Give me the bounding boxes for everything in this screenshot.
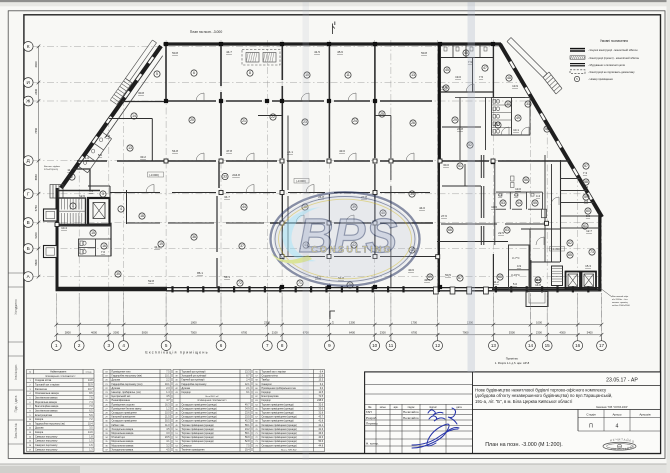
svg-text:52.8: 52.8 bbox=[245, 441, 250, 443]
svg-text:Примітки:: Примітки: bbox=[506, 357, 519, 361]
svg-text:1700: 1700 bbox=[411, 320, 417, 324]
svg-text:Складське приміщення (оренда): Складське приміщення (оренда) bbox=[262, 444, 297, 447]
svg-text:2300: 2300 bbox=[536, 331, 542, 335]
svg-text:1300: 1300 bbox=[349, 320, 355, 324]
svg-text:Приміщення прибирального інв.: Приміщення прибирального інв. bbox=[262, 387, 297, 390]
svg-text:60: 60 bbox=[586, 209, 590, 213]
svg-text:Складське приміщення (оренда): Складське приміщення (оренда) bbox=[182, 407, 217, 410]
svg-text:14: 14 bbox=[132, 114, 136, 118]
svg-text:- Конструкції не підлягають де: - Конструкції не підлягають демонтажу bbox=[588, 70, 635, 74]
svg-text:Торгове приміщення (оренда): Торгове приміщення (оренда) bbox=[262, 407, 294, 410]
svg-text:Холодильна камера: Холодильна камера bbox=[112, 449, 134, 451]
svg-text:4.4: 4.4 bbox=[536, 194, 541, 198]
svg-text:ПРИМІЩЕННЯ СУПЕРМАРКЕТУ: ПРИМІЩЕННЯ СУПЕРМАРКЕТУ bbox=[45, 375, 76, 378]
svg-text:Вентиляційна камера: Вентиляційна камера bbox=[35, 405, 59, 408]
svg-text:Холодильна камера: Холодильна камера bbox=[112, 429, 134, 431]
svg-text:Експлікація приміщень: Експлікація приміщень bbox=[145, 351, 208, 355]
svg-text:6700: 6700 bbox=[241, 331, 247, 335]
svg-text:54: 54 bbox=[517, 201, 521, 205]
svg-text:67: 67 bbox=[458, 276, 462, 280]
svg-text:підпис: підпис bbox=[429, 405, 437, 409]
svg-text:№: № bbox=[29, 371, 31, 374]
svg-text:30.0: 30.0 bbox=[443, 163, 449, 167]
svg-text:Вантажний ліфт: Вантажний ліфт bbox=[612, 295, 628, 298]
svg-text:Електрощитова: Електрощитова bbox=[262, 396, 280, 398]
svg-text:План на позн. -3.000: План на позн. -3.000 bbox=[190, 30, 223, 34]
svg-text:3400: 3400 bbox=[587, 331, 593, 335]
svg-text:Замовник ТОВ "СОЮЗ-2004": Замовник ТОВ "СОЮЗ-2004" bbox=[596, 406, 628, 409]
svg-text:86.1: 86.1 bbox=[197, 271, 203, 275]
svg-text:1.6: 1.6 bbox=[106, 134, 111, 138]
svg-text:44.1: 44.1 bbox=[287, 150, 293, 154]
svg-text:62: 62 bbox=[568, 241, 572, 245]
svg-text:Зм.: Зм. bbox=[368, 405, 372, 409]
svg-text:Фасовочна: Фасовочна bbox=[35, 388, 48, 391]
svg-text:47: 47 bbox=[483, 66, 487, 70]
svg-text:50.5: 50.5 bbox=[445, 273, 451, 277]
svg-text:29: 29 bbox=[453, 118, 457, 122]
svg-text:Складське приміщення (оренда): Складське приміщення (оренда) bbox=[262, 424, 297, 427]
svg-text:Морозильна камера: Морозильна камера bbox=[112, 433, 135, 435]
svg-text:- Конструкції (проект) - монол: - Конструкції (проект) - монолітний з/бе… bbox=[588, 56, 640, 60]
svg-text:25: 25 bbox=[380, 112, 384, 116]
svg-text:Санвузол: Санвузол bbox=[182, 445, 193, 447]
svg-text:кабіна 1500х2500: кабіна 1500х2500 bbox=[612, 304, 631, 307]
svg-text:10.0: 10.0 bbox=[165, 413, 170, 415]
svg-text:41.5: 41.5 bbox=[314, 50, 320, 54]
svg-text:53: 53 bbox=[501, 201, 505, 205]
svg-text:45: 45 bbox=[445, 68, 449, 72]
svg-text:13.7: 13.7 bbox=[88, 389, 93, 391]
svg-text:41.6: 41.6 bbox=[154, 245, 160, 249]
svg-text:43.0: 43.0 bbox=[339, 149, 345, 153]
svg-text:49.7: 49.7 bbox=[424, 278, 430, 282]
svg-text:Приміщення безпеки камер: Приміщення безпеки камер bbox=[112, 407, 142, 410]
svg-text:Ж: Ж bbox=[26, 99, 31, 104]
svg-text:Інв.№ориг.: Інв.№ориг. bbox=[14, 364, 18, 380]
svg-text:19.4: 19.4 bbox=[245, 449, 250, 451]
svg-text:7500: 7500 bbox=[191, 331, 197, 335]
svg-text:Заготівельна камера: Заготівельна камера bbox=[35, 397, 58, 400]
svg-text:П: П bbox=[589, 424, 593, 430]
svg-text:5000: 5000 bbox=[142, 331, 148, 335]
svg-text:Нечитайло: Нечитайло bbox=[403, 410, 419, 414]
svg-text:24: 24 bbox=[353, 119, 357, 123]
svg-text:42.3: 42.3 bbox=[318, 437, 323, 439]
svg-text:Торговий цех кулінарії: Торговий цех кулінарії bbox=[182, 371, 206, 374]
svg-text:43.7: 43.7 bbox=[318, 417, 323, 419]
svg-text:11: 11 bbox=[389, 343, 394, 348]
svg-text:23.5: 23.5 bbox=[245, 417, 250, 419]
svg-text:Узгоджено: Узгоджено bbox=[14, 299, 18, 315]
svg-text:5750: 5750 bbox=[34, 205, 38, 211]
svg-text:8.9: 8.9 bbox=[586, 214, 591, 218]
svg-text:31: 31 bbox=[526, 102, 530, 106]
svg-text:Складське приміщення: Складське приміщення bbox=[112, 412, 138, 415]
svg-text:1: 1 bbox=[332, 321, 334, 325]
svg-text:55: 55 bbox=[533, 201, 537, 205]
svg-text:6: 6 bbox=[193, 71, 195, 75]
svg-text:Центральний зал: Центральний зал bbox=[112, 395, 131, 398]
svg-text:Душова: Душова bbox=[35, 428, 44, 430]
svg-text:Підп. і дата: Підп. і дата bbox=[14, 395, 18, 412]
svg-text:23.5: 23.5 bbox=[165, 437, 170, 439]
svg-text:М`ясний цех: М`ясний цех bbox=[112, 436, 126, 439]
svg-text:Аркушів: Аркушів bbox=[639, 413, 651, 417]
svg-text:8: 8 bbox=[281, 343, 284, 348]
svg-text:12.7: 12.7 bbox=[586, 229, 592, 233]
svg-text:37: 37 bbox=[240, 244, 244, 248]
svg-text:36: 36 bbox=[192, 235, 196, 239]
svg-text:Складське приміщення (оренда): Складське приміщення (оренда) bbox=[182, 412, 217, 415]
svg-text:32.6: 32.6 bbox=[318, 404, 323, 406]
svg-text:41.1: 41.1 bbox=[318, 425, 323, 427]
svg-text:Торговий зал з нарізки: Торговий зал з нарізки bbox=[262, 371, 287, 374]
svg-text:71.5: 71.5 bbox=[318, 396, 323, 398]
svg-text:44.7: 44.7 bbox=[226, 50, 232, 54]
svg-text:Торгове приміщення (оренда): Торгове приміщення (оренда) bbox=[182, 432, 214, 435]
svg-text:Душова: Душова bbox=[182, 388, 191, 390]
svg-text:Санвузол персоналу: Санвузол персоналу bbox=[35, 449, 58, 451]
svg-text:Гардеробна персоналу (зм): Гардеробна персоналу (зм) bbox=[35, 423, 65, 425]
svg-text:(добудова об'єкту незавершеног: (добудова об'єкту незавершеного будівниц… bbox=[475, 393, 612, 398]
svg-text:Вантаж. підйом.: Вантаж. підйом. bbox=[44, 165, 61, 168]
svg-text:50.6: 50.6 bbox=[318, 441, 323, 443]
svg-text:54.8: 54.8 bbox=[172, 149, 178, 153]
svg-text:5: 5 bbox=[165, 343, 168, 348]
svg-text:6700: 6700 bbox=[411, 331, 417, 335]
svg-text:10.1: 10.1 bbox=[513, 128, 519, 132]
svg-text:16: 16 bbox=[102, 244, 106, 248]
svg-text:57: 57 bbox=[584, 164, 588, 168]
svg-text:Кабінет зав.: Кабінет зав. bbox=[112, 424, 125, 427]
svg-text:Санвузол персоналу: Санвузол персоналу bbox=[35, 441, 58, 443]
svg-text:2300: 2300 bbox=[264, 320, 270, 324]
svg-text:1: 1 bbox=[72, 204, 74, 208]
svg-text:Складське приміщення (оренда): Складське приміщення (оренда) bbox=[262, 428, 297, 431]
svg-text:7.0: 7.0 bbox=[101, 250, 106, 254]
svg-text:58: 58 bbox=[584, 180, 588, 184]
svg-text:7450: 7450 bbox=[34, 127, 38, 133]
svg-text:Складське приміщення (оренда): Складське приміщення (оренда) bbox=[262, 440, 297, 443]
svg-text:14.8: 14.8 bbox=[88, 380, 93, 382]
svg-text:58.1: 58.1 bbox=[245, 425, 250, 427]
svg-text:47.8: 47.8 bbox=[226, 149, 232, 153]
svg-text:13: 13 bbox=[491, 343, 497, 348]
svg-text:7: 7 bbox=[266, 343, 269, 348]
svg-text:35: 35 bbox=[116, 272, 120, 276]
svg-text:61: 61 bbox=[583, 224, 587, 228]
svg-text:34.7: 34.7 bbox=[224, 195, 230, 199]
svg-text:Приміщення тели: Приміщення тели bbox=[112, 371, 132, 374]
svg-text:Гардеробна персоналу (чол): Гардеробна персоналу (чол) bbox=[112, 384, 143, 386]
svg-text:Гардеробна персоналу (жін): Гардеробна персоналу (жін) bbox=[112, 375, 143, 378]
svg-text:41.8: 41.8 bbox=[318, 421, 323, 423]
svg-text:44.0: 44.0 bbox=[419, 206, 425, 210]
svg-text:Заготівельна камера: Заготівельна камера bbox=[35, 409, 58, 412]
svg-text:4400: 4400 bbox=[34, 61, 38, 67]
svg-text:13.3: 13.3 bbox=[318, 380, 323, 382]
svg-text:площа: площа bbox=[86, 372, 93, 374]
svg-text:Сходова клітка: Сходова клітка bbox=[35, 379, 52, 382]
svg-text:Нове будівництво нежитлової бу: Нове будівництво нежитлової будівлі торг… bbox=[475, 388, 607, 393]
svg-text:Торгове приміщення (оренда): Торгове приміщення (оренда) bbox=[182, 440, 214, 443]
svg-text:машин. приміщ.: машин. приміщ. bbox=[612, 301, 629, 304]
svg-text:Сходова клітка: Сходова клітка bbox=[262, 375, 279, 378]
svg-text:Розроб.: Розроб. bbox=[366, 416, 377, 420]
svg-text:21.5: 21.5 bbox=[165, 417, 170, 419]
svg-text:1.1: 1.1 bbox=[498, 193, 503, 197]
svg-text:CONSULTING: CONSULTING bbox=[311, 245, 393, 255]
svg-text:кільк.: кільк. bbox=[380, 405, 387, 409]
svg-text:11.2: 11.2 bbox=[67, 168, 73, 172]
svg-text:12.1: 12.1 bbox=[245, 384, 250, 386]
svg-text:24.2: 24.2 bbox=[245, 429, 250, 431]
svg-text:15: 15 bbox=[545, 343, 551, 348]
svg-text:15.3: 15.3 bbox=[585, 264, 591, 268]
svg-text:21: 21 bbox=[242, 119, 246, 123]
svg-text:46: 46 bbox=[464, 51, 468, 55]
svg-text:4300: 4300 bbox=[560, 331, 566, 335]
svg-text:30: 30 bbox=[506, 102, 510, 106]
svg-text:7.3: 7.3 bbox=[583, 171, 588, 175]
svg-text:2: 2 bbox=[78, 343, 81, 348]
svg-text:Гарячий цех кулінарії: Гарячий цех кулінарії bbox=[182, 379, 205, 382]
svg-text:5.0: 5.0 bbox=[513, 282, 518, 286]
svg-text:54.1: 54.1 bbox=[224, 275, 230, 279]
svg-text:52.8: 52.8 bbox=[148, 279, 154, 283]
svg-text:Тамбур: Тамбур bbox=[262, 380, 271, 382]
svg-text:1000: 1000 bbox=[536, 320, 542, 324]
svg-text:- Номер приміщення: - Номер приміщення bbox=[588, 77, 613, 81]
svg-text:t=-15°C: t=-15°C bbox=[511, 273, 520, 277]
svg-text:Б: Б bbox=[27, 246, 30, 251]
svg-text:13.9: 13.9 bbox=[512, 84, 518, 88]
svg-text:49: 49 bbox=[516, 116, 520, 120]
svg-text:19.0: 19.0 bbox=[455, 75, 461, 79]
svg-text:11: 11 bbox=[346, 73, 350, 77]
svg-text:66: 66 bbox=[448, 228, 452, 232]
svg-text:45.3: 45.3 bbox=[245, 421, 250, 423]
svg-text:1: 1 bbox=[55, 343, 58, 348]
svg-text:23.8: 23.8 bbox=[457, 127, 463, 131]
svg-text:Катерний приміщення: Катерний приміщення bbox=[112, 416, 136, 419]
svg-text:12: 12 bbox=[435, 343, 441, 348]
svg-text:ГАП: ГАП bbox=[366, 410, 372, 414]
svg-text:В: В bbox=[27, 220, 30, 225]
svg-text:Комора: Комора bbox=[35, 419, 44, 421]
svg-text:10.1: 10.1 bbox=[165, 384, 170, 386]
svg-text:арк.: арк. bbox=[394, 406, 399, 409]
svg-text:Опалювальна камера: Опалювальна камера bbox=[35, 393, 59, 395]
svg-text:Торгове приміщення (оренда): Торгове приміщення (оренда) bbox=[262, 403, 294, 406]
svg-text:2100: 2100 bbox=[272, 331, 278, 335]
svg-text:11.5: 11.5 bbox=[319, 392, 324, 394]
svg-text:12.8: 12.8 bbox=[318, 376, 323, 378]
svg-text:45.6: 45.6 bbox=[337, 50, 343, 54]
svg-text:4: 4 bbox=[122, 343, 125, 348]
svg-text:34: 34 bbox=[410, 192, 414, 196]
svg-text:1000: 1000 bbox=[191, 320, 197, 324]
svg-text:27.6: 27.6 bbox=[441, 214, 447, 218]
svg-text:13.3: 13.3 bbox=[245, 372, 250, 374]
svg-text:5: 5 bbox=[156, 72, 158, 76]
svg-text:22.5: 22.5 bbox=[498, 231, 504, 235]
svg-text:14.9: 14.9 bbox=[88, 432, 93, 434]
svg-text:41.3: 41.3 bbox=[318, 429, 323, 431]
svg-text:5600: 5600 bbox=[34, 259, 38, 265]
svg-text:5200: 5200 bbox=[34, 232, 38, 238]
svg-text:17: 17 bbox=[599, 343, 605, 348]
svg-text:Приміщення охорони: Приміщення охорони bbox=[112, 403, 136, 406]
svg-text:33: 33 bbox=[223, 175, 227, 179]
svg-text:4.4: 4.4 bbox=[89, 189, 94, 193]
svg-text:32: 32 bbox=[496, 123, 500, 127]
svg-text:BPS: BPS bbox=[299, 210, 398, 263]
svg-text:5.0: 5.0 bbox=[98, 153, 103, 157]
svg-text:Морозильна камера: Морозильна камера bbox=[112, 441, 135, 443]
svg-text:33.6: 33.6 bbox=[318, 408, 323, 410]
svg-text:Технічне приміщення: Технічне приміщення bbox=[182, 448, 206, 451]
svg-text:К: К bbox=[27, 44, 30, 49]
svg-text:59.9: 59.9 bbox=[245, 437, 250, 439]
svg-text:15: 15 bbox=[91, 231, 95, 235]
svg-text:Зам.інв.№: Зам.інв.№ bbox=[14, 423, 18, 439]
svg-text:(-3.000): (-3.000) bbox=[551, 247, 561, 251]
svg-text:1.1: 1.1 bbox=[514, 193, 519, 197]
svg-text:Аркуш: Аркуш bbox=[613, 413, 623, 417]
svg-text:Коридор: Коридор bbox=[262, 392, 272, 394]
svg-text:Умовні позначення: Умовні позначення bbox=[600, 39, 628, 43]
svg-text:Коридор: Коридор bbox=[182, 392, 192, 394]
svg-text:1.0: 1.0 bbox=[85, 156, 90, 160]
svg-text:Електрощитова: Електрощитова bbox=[35, 415, 53, 417]
svg-text:Складське приміщення (оренда): Складське приміщення (оренда) bbox=[182, 420, 217, 423]
svg-text:Всьо 890.1 м2: Всьо 890.1 м2 bbox=[205, 396, 219, 398]
svg-text:6650: 6650 bbox=[34, 174, 38, 180]
svg-text:18: 18 bbox=[140, 214, 144, 218]
svg-text:50: 50 bbox=[545, 127, 549, 131]
svg-text:570х670(h0.5): 570х670(h0.5) bbox=[44, 169, 58, 171]
svg-text:12.6: 12.6 bbox=[79, 194, 85, 198]
svg-text:3.4: 3.4 bbox=[584, 199, 589, 203]
svg-text:Складське приміщення: Складське приміщення bbox=[112, 420, 138, 423]
svg-text:2400: 2400 bbox=[34, 88, 38, 94]
svg-text:44: 44 bbox=[242, 205, 246, 209]
svg-text:Всьо = 7293.8м2: Всьо = 7293.8м2 bbox=[281, 449, 297, 451]
svg-text:51: 51 bbox=[458, 164, 462, 168]
svg-text:Торгове приміщення (оренда): Торгове приміщення (оренда) bbox=[182, 428, 214, 431]
svg-text:191-а, літ. "Б", в м. Біла Це: 191-а, літ. "Б", в м. Біла Церква Київсь… bbox=[475, 399, 572, 404]
svg-text:- Існуючі конструкції - монолі: - Існуючі конструкції - монолітний з/бет… bbox=[588, 48, 638, 52]
svg-text:56: 56 bbox=[524, 178, 528, 182]
svg-text:Складське приміщення (оренда): Складське приміщення (оренда) bbox=[182, 403, 217, 406]
svg-text:4000: 4000 bbox=[91, 331, 97, 335]
svg-text:Інвентар. прибиральн. (зм): Інвентар. прибиральн. (зм) bbox=[112, 392, 141, 394]
svg-text:6400: 6400 bbox=[349, 331, 355, 335]
svg-text:44.8: 44.8 bbox=[318, 445, 323, 447]
svg-text:План на позн. -3.000 (М 1:200): План на позн. -3.000 (М 1:200). bbox=[485, 442, 563, 448]
svg-text:92.9: 92.9 bbox=[88, 385, 93, 387]
svg-text:14.8: 14.8 bbox=[535, 283, 541, 287]
svg-text:3: 3 bbox=[108, 343, 111, 348]
svg-text:4.9: 4.9 bbox=[517, 264, 522, 268]
svg-text:73: 73 bbox=[590, 250, 594, 254]
svg-text:Складське приміщення (оренда): Складське приміщення (оренда) bbox=[262, 416, 297, 419]
svg-text:50.8: 50.8 bbox=[172, 51, 178, 55]
svg-text:23.05.17 - АР: 23.05.17 - АР bbox=[606, 377, 638, 383]
svg-text:10.4: 10.4 bbox=[61, 226, 67, 230]
svg-text:48: 48 bbox=[507, 76, 511, 80]
svg-text:Найменування: Найменування bbox=[50, 371, 67, 374]
svg-text:Торгове приміщення (оренда): Торгове приміщення (оренда) bbox=[182, 424, 214, 427]
svg-text:Санвузол: Санвузол bbox=[262, 384, 273, 386]
svg-text:49.7: 49.7 bbox=[245, 404, 250, 406]
svg-text:Складське приміщення (оренда): Складське приміщення (оренда) bbox=[262, 436, 297, 439]
svg-text:13: 13 bbox=[128, 146, 132, 150]
svg-text:7.4: 7.4 bbox=[584, 185, 589, 189]
svg-text:Торгове приміщення (оренда): Торгове приміщення (оренда) bbox=[262, 420, 294, 423]
svg-text:16: 16 bbox=[575, 343, 581, 348]
svg-text:Комора: Комора bbox=[35, 432, 44, 434]
svg-text:2300: 2300 bbox=[380, 331, 386, 335]
svg-text:Складське приміщення (оренда): Складське приміщення (оренда) bbox=[262, 432, 297, 435]
svg-text:26: 26 bbox=[411, 121, 415, 125]
svg-text:244.8: 244.8 bbox=[232, 173, 240, 177]
svg-text:7.5: 7.5 bbox=[479, 75, 484, 79]
svg-text:13: 13 bbox=[411, 73, 415, 77]
svg-text:5300: 5300 bbox=[509, 331, 515, 335]
svg-text:10.4: 10.4 bbox=[88, 423, 93, 425]
svg-text:11.9: 11.9 bbox=[441, 85, 447, 89]
svg-text:Складське приміщення (оренда): Складське приміщення (оренда) bbox=[182, 416, 217, 419]
svg-text:11.2: 11.2 bbox=[493, 280, 499, 284]
svg-text:6: 6 bbox=[220, 343, 223, 348]
svg-text:t=-7°C: t=-7°C bbox=[512, 256, 520, 260]
svg-text:71: 71 bbox=[298, 281, 302, 285]
svg-text:(-3.000): (-3.000) bbox=[149, 173, 159, 177]
svg-text:Нечитайло: Нечитайло bbox=[403, 416, 419, 420]
svg-text:16.3: 16.3 bbox=[165, 404, 170, 406]
svg-text:3: 3 bbox=[102, 192, 104, 196]
svg-text:68: 68 bbox=[498, 275, 502, 279]
svg-text:Коридор: Коридор bbox=[262, 400, 272, 402]
svg-text:Перевір.: Перевір. bbox=[366, 421, 378, 425]
svg-text:50.5: 50.5 bbox=[165, 421, 170, 423]
svg-text:13.0: 13.0 bbox=[515, 187, 521, 191]
svg-text:Торговий зал з нарізки: Торговий зал з нарізки bbox=[35, 384, 60, 387]
svg-text:4: 4 bbox=[120, 207, 122, 211]
svg-text:Торгове приміщення (оренда): Торгове приміщення (оренда) bbox=[262, 412, 294, 415]
svg-text:Душова: Душова bbox=[112, 380, 121, 382]
svg-text:в/п 2000кг - без: в/п 2000кг - без bbox=[612, 299, 628, 301]
svg-text:2000: 2000 bbox=[113, 331, 119, 335]
svg-text:1. Розріз 1-1 д.б. арк. АР-8: 1. Розріз 1-1 д.б. арк. АР-8 bbox=[495, 361, 530, 365]
svg-text:4: 4 bbox=[616, 424, 619, 430]
svg-text:дата: дата bbox=[456, 406, 462, 409]
svg-text:Н. контр.: Н. контр. bbox=[366, 442, 379, 446]
svg-text:23.6: 23.6 bbox=[245, 413, 250, 415]
svg-text:65: 65 bbox=[568, 253, 572, 257]
svg-text:50.8: 50.8 bbox=[421, 51, 427, 55]
svg-text:34.8: 34.8 bbox=[535, 278, 541, 282]
svg-text:- Мурування з силікатної цегли: - Мурування з силікатної цегли bbox=[588, 63, 626, 67]
svg-text:10.3: 10.3 bbox=[491, 205, 497, 209]
svg-text:58.1: 58.1 bbox=[245, 433, 250, 435]
svg-text:Санвузол персоналу: Санвузол персоналу bbox=[35, 445, 58, 447]
svg-text:40.6: 40.6 bbox=[408, 268, 414, 272]
svg-text:Торгове приміщення (оренда): Торгове приміщення (оренда) bbox=[182, 436, 214, 439]
